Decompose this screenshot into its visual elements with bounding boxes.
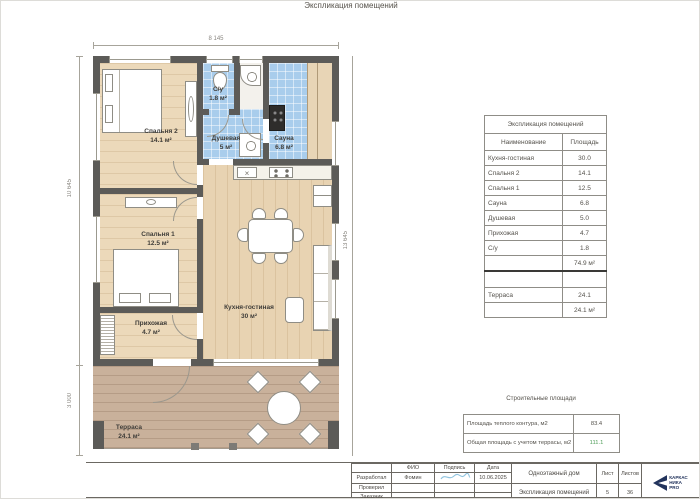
- glass-door: [213, 359, 319, 366]
- signature-icon: [439, 473, 471, 481]
- room-label-kitchen: Кухня-гостиная30 м²: [197, 303, 301, 321]
- terrace-post-icon: [328, 421, 339, 449]
- terrace-row: Терраса24.1: [485, 288, 607, 303]
- room-label-hallway: Прихожая4.7 м²: [109, 319, 193, 337]
- pillow-icon: [105, 105, 113, 123]
- terrace-table-icon: [267, 391, 301, 425]
- chair-icon: [274, 208, 288, 219]
- sheet-label: Лист: [597, 464, 619, 484]
- fio-header: ФИО: [392, 464, 435, 473]
- customer-role: Заказчик: [352, 493, 392, 499]
- chair-icon: [252, 208, 266, 219]
- window: [239, 56, 263, 63]
- fridge-icon: [313, 185, 332, 207]
- table-row: Общая площадь с учетом террасы, м2 111.1: [464, 434, 620, 453]
- logo-text: КАРКАС НИКА PRO: [669, 475, 688, 490]
- wall-segment: [263, 63, 269, 119]
- chair-icon: [237, 228, 248, 242]
- room-label-bedroom2: Спальня 214.1 м²: [119, 127, 203, 145]
- table-row: Прихожая4.7: [485, 226, 607, 241]
- logo-chevron-icon: [653, 475, 667, 491]
- table-row: Спальня 112.5: [485, 181, 607, 196]
- developer-signature: [435, 473, 475, 484]
- explication-col-name: Наименование: [485, 134, 563, 151]
- dimension-label-left-upper: 10 645: [67, 179, 73, 197]
- window: [109, 56, 171, 63]
- window: [93, 216, 100, 283]
- window: [332, 279, 339, 319]
- sink-glyph: ×: [245, 169, 250, 178]
- warm-contour-label: Площадь теплого контура, м2: [464, 415, 574, 434]
- mirror-icon: [146, 199, 156, 205]
- dimension-label-right: 13 645: [343, 231, 349, 249]
- pillow-icon: [149, 293, 171, 303]
- subtotal-row: 74.9 м²: [485, 256, 607, 272]
- sheets-label: Листов: [619, 464, 642, 484]
- title-block-header-row: ФИО Подпись Дата Одноэтажный дом Лист Ли…: [352, 464, 700, 473]
- table-row: С/у1.8: [485, 241, 607, 256]
- developer-role: Разработал: [352, 473, 392, 484]
- construction-title: Строительные площади: [463, 395, 619, 402]
- dimension-label-top: 8 145: [181, 36, 251, 42]
- table-row: Душевая5.0: [485, 211, 607, 226]
- dimension-tick: [76, 455, 83, 456]
- pillow-icon: [105, 74, 113, 92]
- signature-header: Подпись: [435, 464, 475, 473]
- total-area-label: Общая площадь с учетом террасы, м2: [464, 434, 574, 453]
- room-label-terrace: Терраса24.1 м²: [95, 423, 163, 441]
- sink-icon: ×: [237, 167, 257, 178]
- warm-contour-value: 83.4: [574, 415, 620, 434]
- table-row: Кухня-гостиная30.0: [485, 151, 607, 166]
- explication-title: Экспликация помещений: [485, 116, 607, 134]
- date-header: Дата: [475, 464, 512, 473]
- drawing-sheet: Экспликация помещений ×: [0, 0, 700, 499]
- wall-segment: [93, 188, 203, 194]
- blanket-line: [119, 70, 120, 132]
- room-label-bedroom1: Спальня 112.5 м²: [116, 230, 200, 248]
- room-label-sauna: Сауна6.8 м²: [261, 134, 307, 152]
- window: [332, 223, 339, 261]
- door-opening: [153, 359, 191, 366]
- dimension-tick: [76, 56, 83, 57]
- explication-col-area: Площадь: [563, 134, 607, 151]
- sauna-bench-step: [317, 63, 318, 159]
- empty-row: [485, 271, 607, 288]
- wall-segment: [197, 339, 203, 359]
- stove-icon: [269, 167, 293, 178]
- total-area-value: 111.1: [574, 434, 620, 453]
- sheets-total: 36: [619, 484, 642, 499]
- dimension-tick: [76, 365, 83, 366]
- project-name: Одноэтажный дом: [512, 464, 597, 484]
- dimension-tick: [338, 42, 339, 49]
- wall-segment: [93, 307, 203, 313]
- terrace-total-row: 24.1 м²: [485, 303, 607, 318]
- wall-segment: [233, 159, 332, 165]
- sheet-number: 5: [597, 484, 619, 499]
- wall-segment: [229, 109, 240, 115]
- terrace-post-icon: [191, 443, 199, 450]
- subtotal-value: 74.9 м²: [563, 256, 607, 272]
- table-row: Спальня 214.1: [485, 166, 607, 181]
- sofa-icon: [313, 245, 332, 331]
- construction-table: Площадь теплого контура, м2 83.4 Общая п…: [463, 414, 620, 453]
- dimension-label-left-lower: 3 000: [67, 393, 73, 408]
- dimension-line: [79, 56, 80, 456]
- terrace-post-icon: [229, 443, 237, 450]
- room-label-wc: С/у1.8 м²: [199, 85, 237, 103]
- page-title: Экспликация помещений: [1, 1, 700, 10]
- company-logo: КАРКАС НИКА PRO: [642, 475, 699, 491]
- title-block: ФИО Подпись Дата Одноэтажный дом Лист Ли…: [351, 463, 700, 499]
- wall-segment: [197, 159, 209, 165]
- terrace-total-value: 24.1 м²: [563, 303, 607, 318]
- sauna-stove-icon: [269, 105, 285, 131]
- sauna-bench-icon: [307, 63, 332, 159]
- table-row: Площадь теплого контура, м2 83.4: [464, 415, 620, 434]
- window: [93, 93, 100, 161]
- developer-name: Фомин: [392, 473, 435, 484]
- mirror-icon: [188, 96, 194, 122]
- document-title: Экспликация помещений: [512, 484, 597, 499]
- logo-cell: КАРКАС НИКА PRO: [642, 464, 700, 499]
- toilet-tank-icon: [211, 65, 229, 72]
- table-row: Сауна6.8: [485, 196, 607, 211]
- dining-table-icon: [248, 219, 293, 253]
- pillow-icon: [119, 293, 141, 303]
- dimension-line: [352, 56, 353, 456]
- window: [206, 56, 233, 63]
- wall-segment: [332, 56, 339, 366]
- explication-table: Экспликация помещений Наименование Площа…: [484, 115, 607, 318]
- window: [332, 121, 339, 166]
- room-label-shower: Душевая5 м²: [197, 134, 255, 152]
- developer-date: 10.06.2025: [475, 473, 512, 484]
- dimension-tick: [93, 42, 94, 49]
- dimension-line: [93, 45, 339, 46]
- checker-role: Проверил: [352, 484, 392, 493]
